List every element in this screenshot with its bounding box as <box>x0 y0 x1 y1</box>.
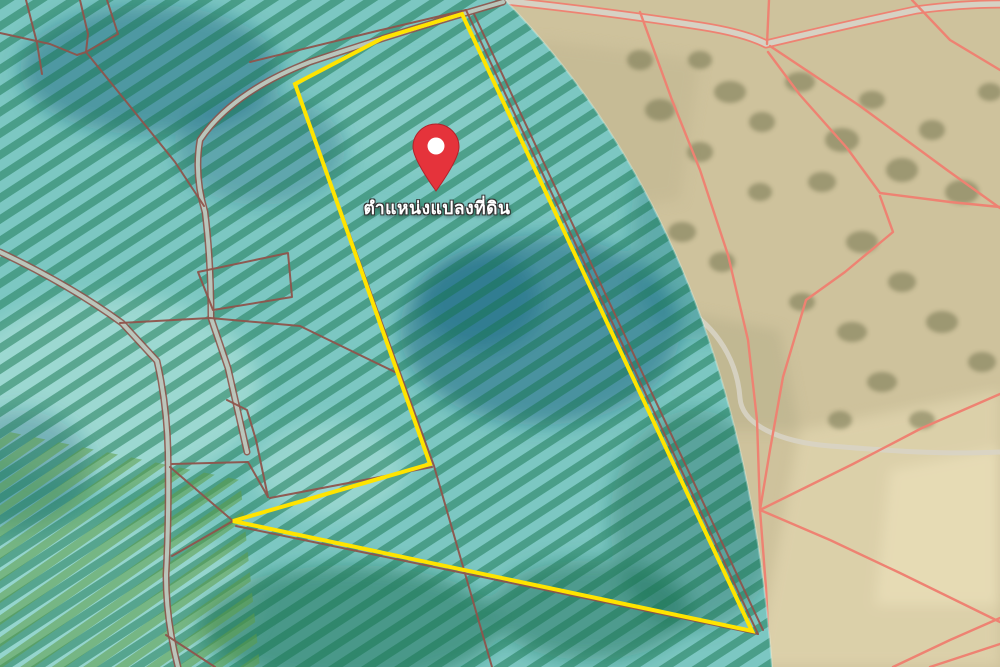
map-canvas[interactable]: ตำแหน่งแปลงที่ดิน <box>0 0 1000 667</box>
map-svg <box>0 0 1000 667</box>
pin-hole <box>428 138 445 155</box>
